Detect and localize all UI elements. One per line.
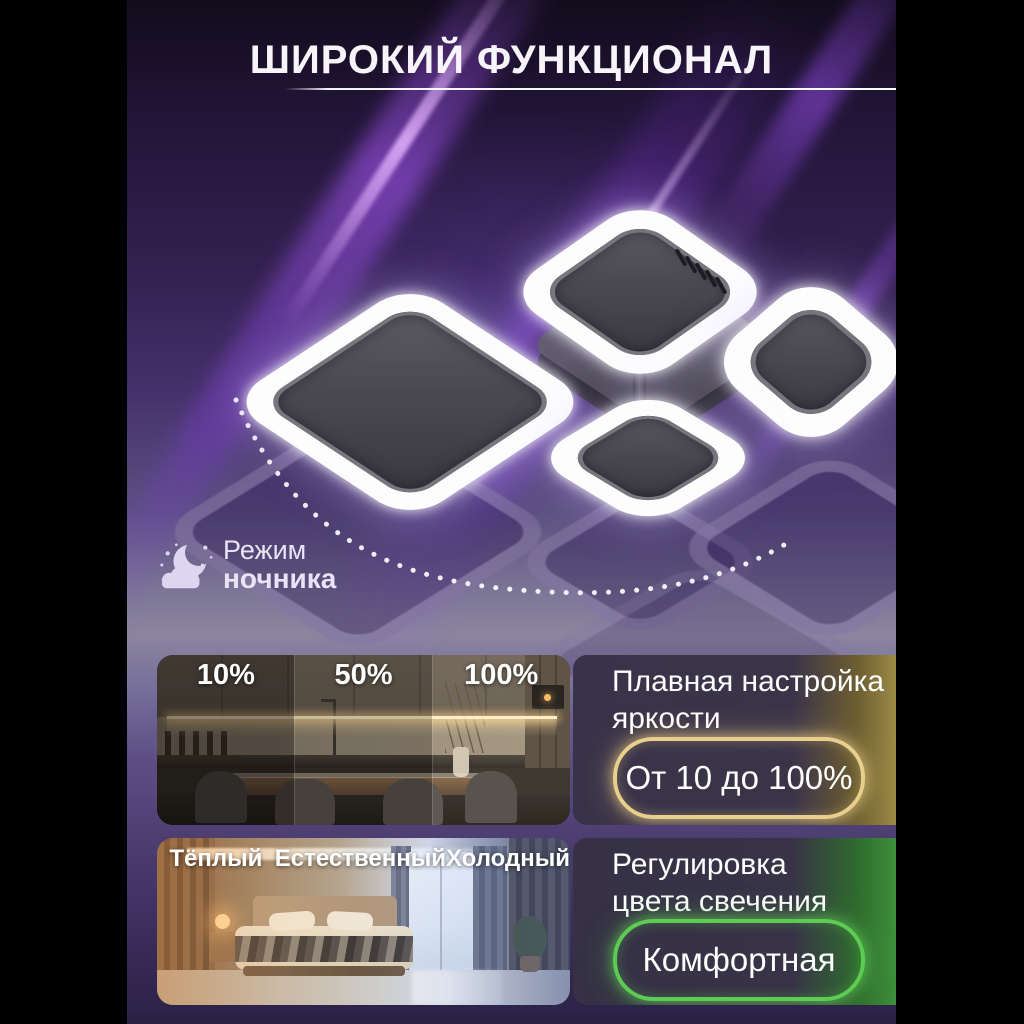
brightness-heading-line1: Плавная настройка	[612, 663, 884, 700]
color-temp-label: Естественный	[275, 842, 446, 873]
brightness-range-badge: От 10 до 100%	[613, 737, 865, 819]
bedroom-photo: Тёплый Естественный Холодный	[157, 838, 570, 1005]
brightness-heading: Плавная настройка яркости	[612, 663, 884, 737]
page: ШИРОКИЙ ФУНКЦИОНАЛ	[0, 0, 1024, 1024]
right-letterbox	[896, 0, 1024, 1024]
kitchen-photo: 10% 50% 100%	[157, 655, 570, 825]
color-temp-heading-line2: цвета свечения	[612, 883, 827, 920]
brightness-label: 10%	[157, 659, 295, 692]
color-temp-label: Тёплый	[157, 842, 275, 873]
brightness-info-panel: Плавная настройка яркости От 10 до 100%	[573, 655, 896, 825]
brightness-heading-line2: яркости	[612, 700, 884, 737]
color-temp-label: Холодный	[446, 842, 570, 873]
poster-content: ШИРОКИЙ ФУНКЦИОНАЛ	[127, 0, 896, 1024]
left-letterbox	[0, 0, 127, 1024]
brightness-labels: 10% 50% 100%	[157, 659, 570, 692]
color-temp-heading: Регулировка цвета свечения	[612, 846, 827, 920]
night-mode-line2: ночника	[223, 564, 336, 593]
color-temp-heading-line1: Регулировка	[612, 846, 827, 883]
brightness-label: 50%	[295, 659, 433, 692]
night-mode-label: Режим ночника	[155, 536, 336, 594]
moon-cloud-icon	[155, 536, 217, 594]
title-underline	[285, 88, 896, 90]
vent-slots	[679, 248, 749, 298]
color-temp-info-panel: Регулировка цвета свечения Комфортная	[573, 838, 896, 1005]
brightness-label: 100%	[432, 659, 570, 692]
page-title: ШИРОКИЙ ФУНКЦИОНАЛ	[127, 38, 896, 83]
color-temp-labels: Тёплый Естественный Холодный	[157, 842, 570, 873]
color-temp-badge: Комфортная	[613, 919, 865, 1001]
night-mode-line1: Режим	[223, 536, 336, 564]
